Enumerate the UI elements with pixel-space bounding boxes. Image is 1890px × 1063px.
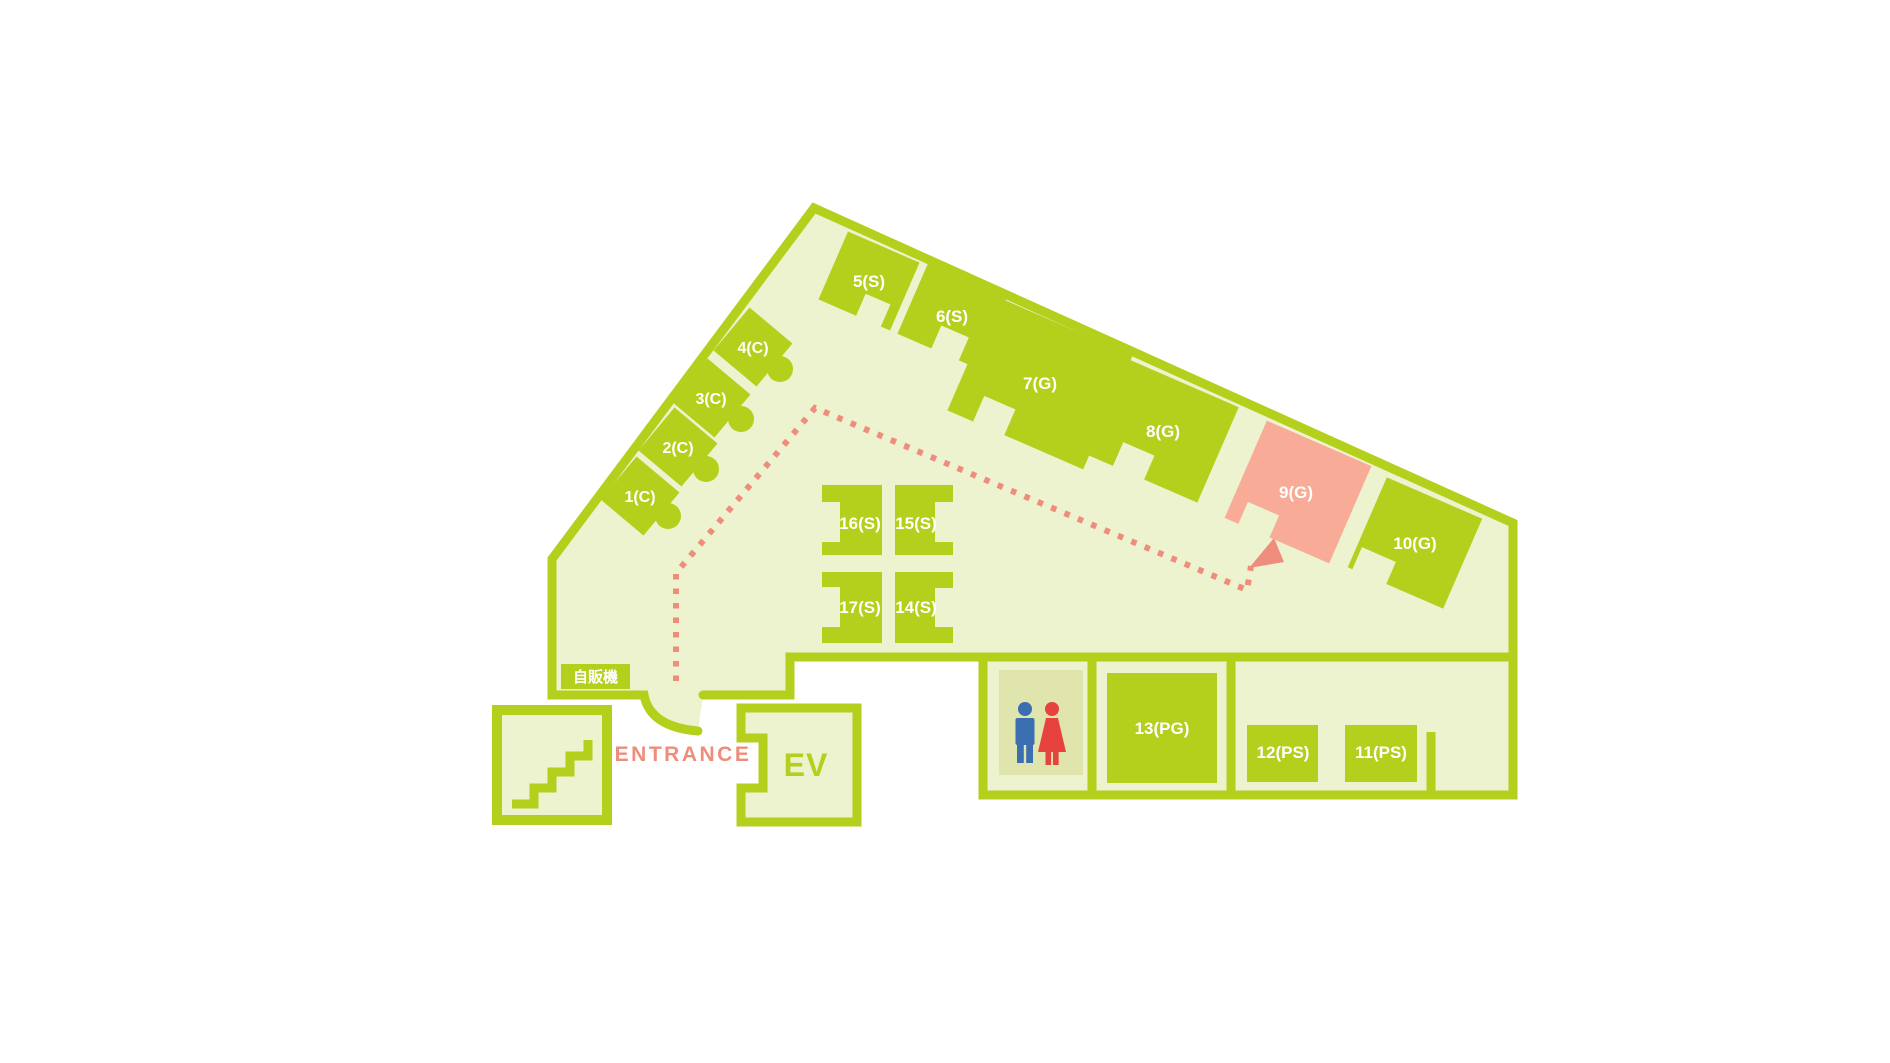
elevator-box[interactable]: EV xyxy=(741,708,857,822)
vending-machine-label: 自販機 xyxy=(573,668,618,686)
room-10g-label: 10(G) xyxy=(1393,534,1436,553)
elevator-label: EV xyxy=(784,747,829,783)
room-8g-label: 8(G) xyxy=(1146,422,1180,441)
vending-machine[interactable]: 自販機 xyxy=(561,664,630,689)
room-14s-label: 14(S) xyxy=(895,598,937,617)
room-5s-label: 5(S) xyxy=(853,272,885,291)
restroom-area[interactable] xyxy=(999,670,1083,775)
table-dot-3 xyxy=(728,406,754,432)
room-13pg-label: 13(PG) xyxy=(1135,719,1190,738)
room-9g-label: 9(G) xyxy=(1279,483,1313,502)
room-17s-label: 17(S) xyxy=(839,598,881,617)
room-11ps-label: 11(PS) xyxy=(1355,743,1407,762)
room-1c-label: 1(C) xyxy=(624,489,655,506)
room-6s-label: 6(S) xyxy=(936,307,968,326)
room-15s-label: 15(S) xyxy=(895,514,937,533)
table-dot-1 xyxy=(655,503,681,529)
room-4c-label: 4(C) xyxy=(737,340,768,357)
room-12ps-label: 12(PS) xyxy=(1257,743,1310,762)
table-dot-4 xyxy=(767,356,793,382)
room-16s-label: 16(S) xyxy=(839,514,881,533)
stairs-box[interactable] xyxy=(497,710,607,820)
room-7g-label: 7(G) xyxy=(1023,374,1057,393)
room-2c-label: 2(C) xyxy=(662,440,693,457)
floor-map-page: 自販機 EV ENTRANCE 1(C) 2(C) 3(C) 4(C) 5(S)… xyxy=(0,0,1890,1063)
room-3c-label: 3(C) xyxy=(695,391,726,408)
floor-map-canvas: 自販機 EV ENTRANCE 1(C) 2(C) 3(C) 4(C) 5(S)… xyxy=(0,0,1890,1063)
table-dot-2 xyxy=(693,456,719,482)
entrance-label: ENTRANCE xyxy=(615,743,752,766)
